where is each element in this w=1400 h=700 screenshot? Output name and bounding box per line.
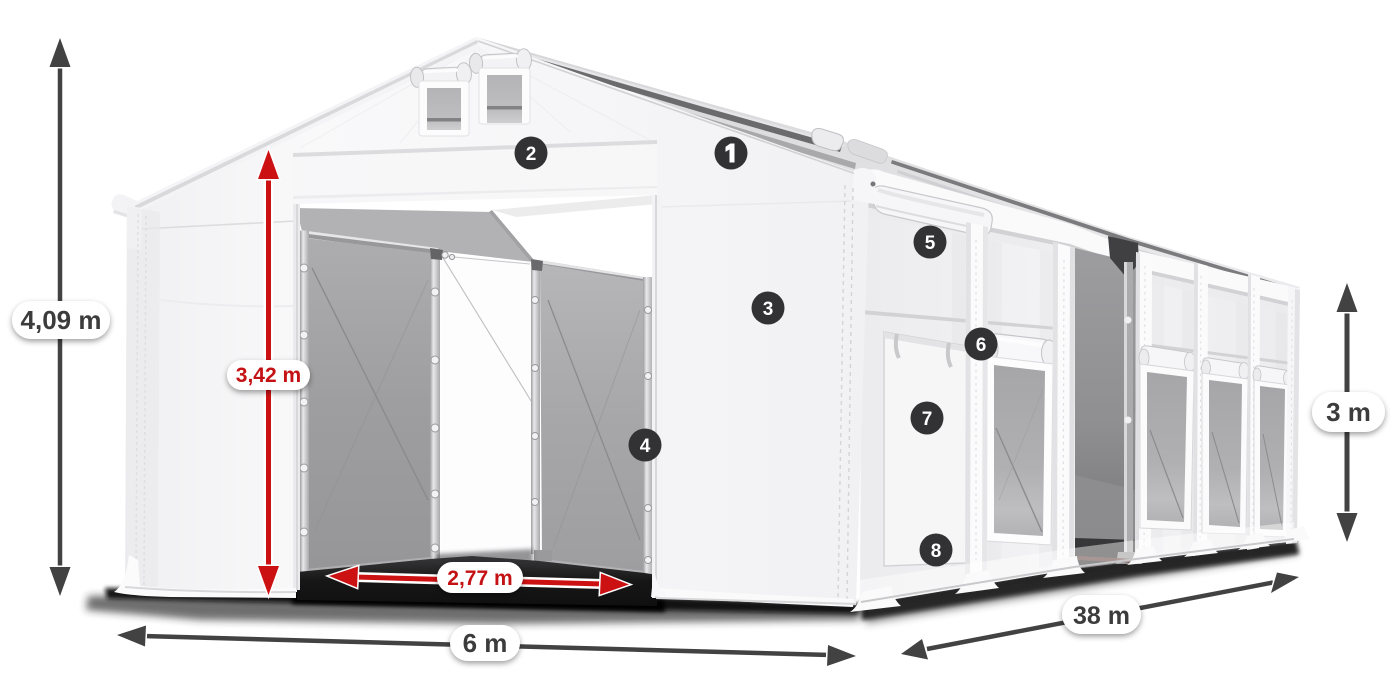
svg-text:3: 3: [763, 299, 774, 320]
svg-text:8: 8: [931, 541, 942, 562]
svg-text:38 m: 38 m: [1073, 602, 1130, 630]
svg-text:3 m: 3 m: [1326, 397, 1371, 427]
svg-text:6 m: 6 m: [463, 628, 508, 658]
svg-text:2: 2: [526, 144, 537, 165]
svg-text:5: 5: [925, 233, 936, 254]
svg-text:4: 4: [640, 436, 651, 457]
svg-text:4,09 m: 4,09 m: [21, 305, 102, 335]
svg-text:7: 7: [922, 409, 933, 430]
svg-text:2,77 m: 2,77 m: [447, 567, 512, 590]
svg-text:3,42 m: 3,42 m: [236, 364, 301, 387]
svg-text:6: 6: [976, 335, 987, 356]
